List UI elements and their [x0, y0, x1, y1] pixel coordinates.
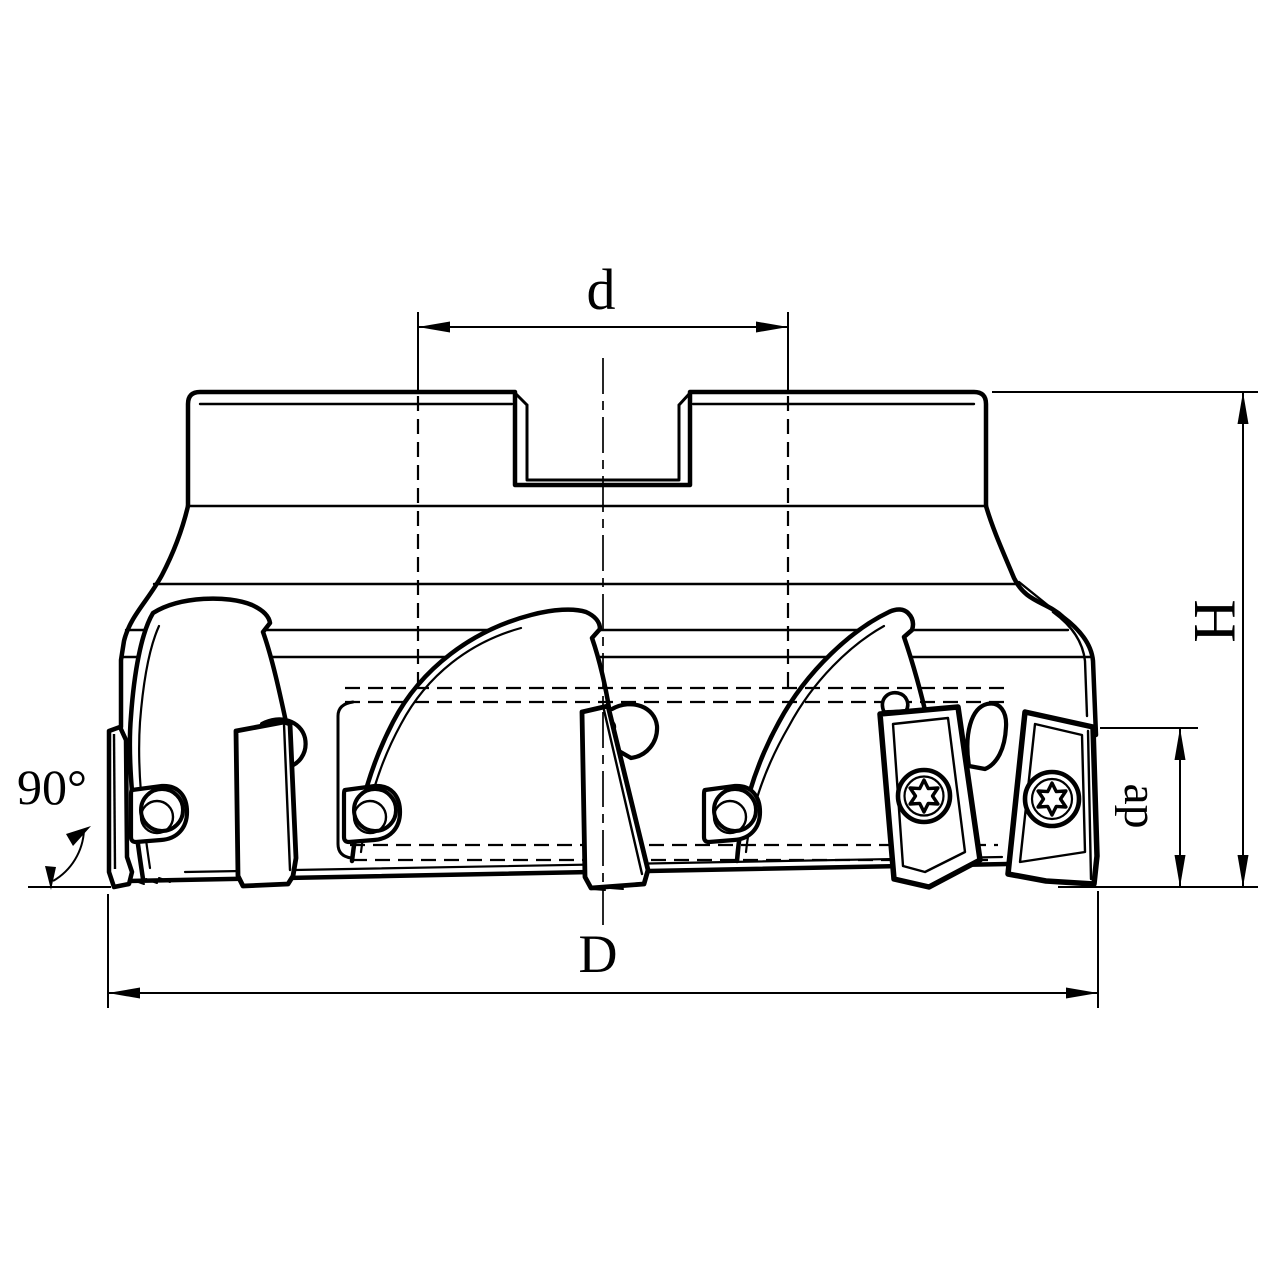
dim-label-ap: ap — [1114, 783, 1167, 828]
face-mill-technical-drawing: d D H ap 90° — [0, 0, 1280, 1280]
dim-label-H: H — [1182, 599, 1248, 642]
neck-right — [986, 506, 1096, 735]
insert-left-of-pair — [880, 707, 980, 887]
hub-outline — [188, 392, 986, 506]
d-arrow-left — [418, 322, 450, 333]
angle-arrow-top — [66, 826, 91, 846]
ap-arrow-top — [1175, 728, 1186, 760]
ap-arrow-bottom — [1175, 855, 1186, 887]
H-arrow-bottom — [1238, 855, 1249, 887]
dim-label-d: d — [587, 257, 616, 322]
d-arrow-right — [756, 322, 788, 333]
insert-rightmost — [1008, 712, 1097, 884]
H-arrow-top — [1238, 392, 1249, 424]
screw-hole-2 — [344, 786, 400, 842]
clamp-tab — [967, 704, 1006, 769]
D-arrow-left — [108, 988, 140, 999]
torx-screw-b — [1025, 772, 1079, 826]
dimension-angle — [28, 826, 111, 890]
edge-insert-line — [114, 734, 115, 869]
torx-screw-a — [898, 770, 950, 822]
screw-hole-1 — [131, 786, 187, 842]
technical-drawing-page: d D H ap 90° — [0, 0, 1280, 1280]
angle-label-90: 90° — [17, 759, 87, 815]
neck-right-chamfer — [1019, 582, 1087, 716]
dim-label-D: D — [579, 924, 618, 984]
screw-hole-3 — [704, 786, 760, 842]
D-arrow-right — [1066, 988, 1098, 999]
